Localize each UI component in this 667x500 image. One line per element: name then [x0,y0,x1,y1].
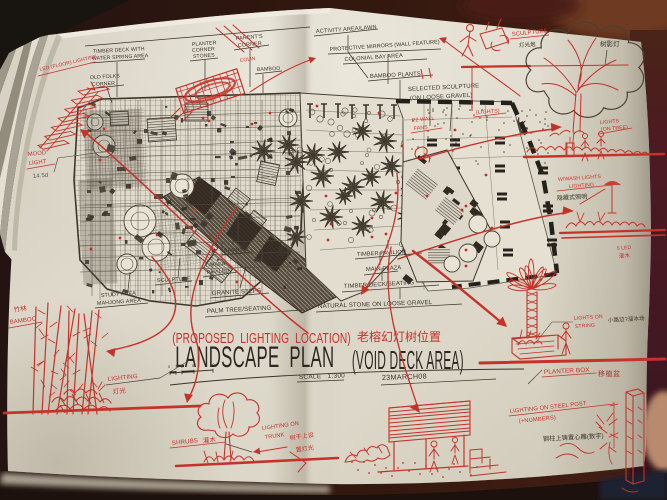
svg-text:树影灯: 树影灯 [600,39,620,48]
svg-text:(PROPOSED LIGHTING LOCATION): (PROPOSED LIGHTING LOCATION) [172,330,351,346]
svg-text:老榕幻灯树位置: 老榕幻灯树位置 [357,329,441,344]
svg-text:CORNER: CORNER [92,81,116,88]
svg-text:10: 10 [210,362,215,367]
svg-text:23MARCH08: 23MARCH08 [382,371,427,382]
svg-text:5 LED: 5 LED [617,245,632,252]
svg-text:移植盆: 移植盆 [598,369,621,378]
